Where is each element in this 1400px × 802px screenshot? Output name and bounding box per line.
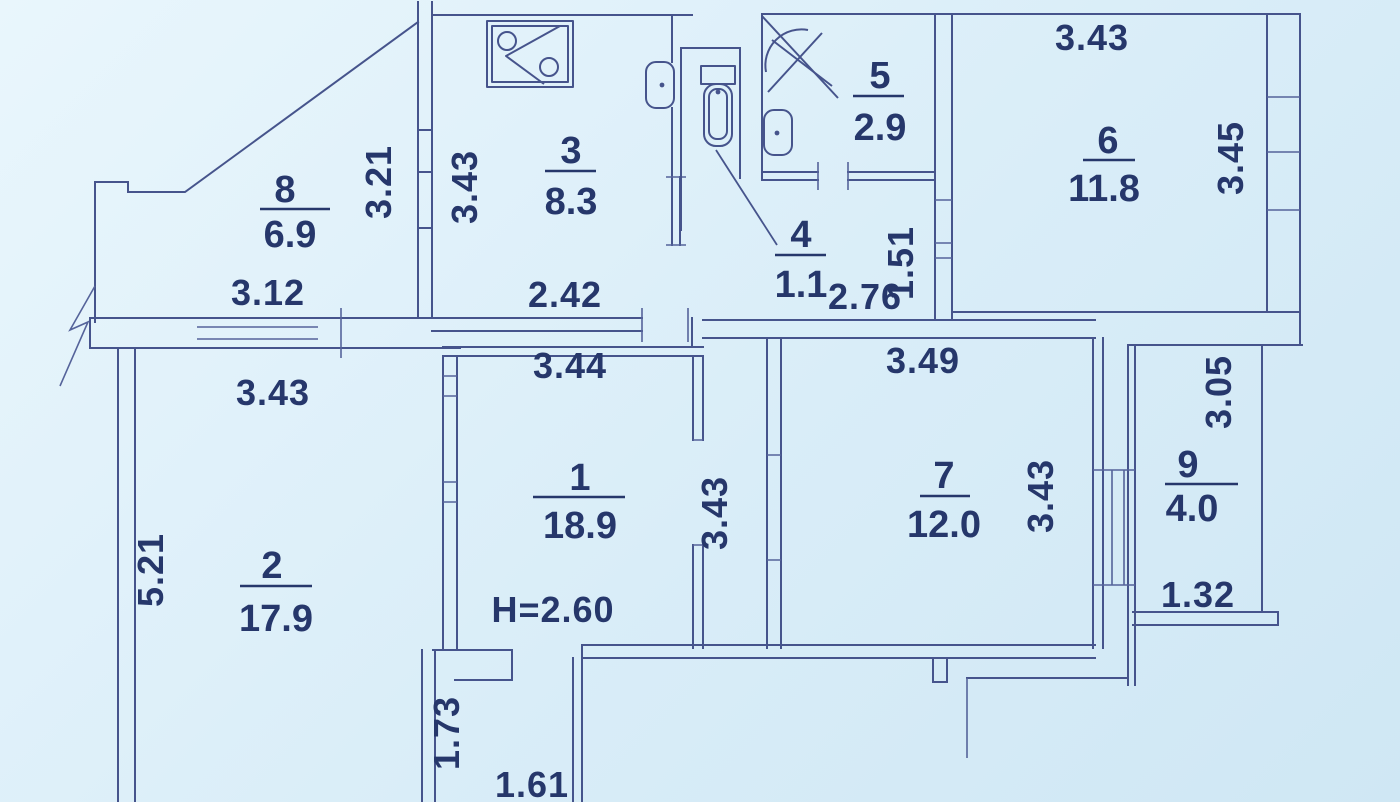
room-8-label: 8 6.9	[260, 169, 330, 256]
floor-plan-svg: 1 18.9 2 17.9 3 8.3 4 1.1 5 2.9 6 11.8	[0, 0, 1400, 802]
room-number: 7	[933, 455, 954, 497]
room-number: 2	[261, 545, 282, 587]
room-area: 4.0	[1166, 488, 1219, 530]
room-area: 1.1	[775, 264, 828, 306]
dim-room8-height: 3.21	[358, 145, 399, 219]
room-2-label: 2 17.9	[239, 545, 313, 640]
toilet-icon	[701, 66, 735, 146]
room-area: 12.0	[907, 504, 981, 546]
dimension-labels: 3.12 3.21 3.43 5.21 3.43 2.42 3.44 3.43 …	[130, 17, 1251, 802]
room-number: 9	[1177, 444, 1198, 486]
dim-hall-height: 1.73	[426, 696, 467, 770]
dim-room2-top: 3.43	[236, 372, 310, 413]
fixtures	[487, 16, 838, 245]
room-number: 3	[560, 130, 581, 172]
room-number: 1	[569, 457, 590, 499]
room-number: 5	[869, 55, 890, 97]
floor-plan: 1 18.9 2 17.9 3 8.3 4 1.1 5 2.9 6 11.8	[0, 0, 1400, 802]
dim-room6-right: 3.45	[1210, 121, 1251, 195]
kitchen-sink-icon	[487, 21, 573, 87]
room-area: 2.9	[854, 107, 907, 149]
dim-hall-width: 1.61	[495, 764, 569, 802]
room-9-label: 9 4.0	[1165, 444, 1238, 530]
dim-room9-bottom: 1.32	[1161, 574, 1235, 615]
wash-basin-icon	[764, 110, 792, 155]
room-1-label: 1 18.9	[533, 457, 625, 547]
dim-room2-left: 5.21	[130, 533, 171, 607]
door-swing-icon	[716, 150, 777, 245]
room-6-label: 6 11.8	[1068, 120, 1140, 210]
room-number: 8	[274, 169, 295, 211]
room-7-label: 7 12.0	[907, 455, 981, 546]
room-area: 11.8	[1068, 168, 1140, 210]
dim-room6-top: 3.43	[1055, 17, 1129, 58]
dim-room1-top: 3.44	[533, 345, 607, 386]
dim-kitchen-bottom: 2.42	[528, 274, 602, 315]
ceiling-height-label: H=2.60	[491, 589, 614, 630]
room-4-label: 4 1.1	[775, 214, 828, 306]
dim-room9-right: 3.05	[1198, 355, 1239, 429]
dim-room7-top: 3.49	[886, 340, 960, 381]
room-area: 6.9	[264, 214, 317, 256]
dim-lobby-height: 1.51	[880, 226, 921, 300]
dim-room8-width: 3.12	[231, 272, 305, 313]
room-5-label: 5 2.9	[853, 55, 906, 149]
room-number: 6	[1097, 120, 1118, 162]
shower-icon	[762, 16, 838, 98]
dim-room7-right: 3.43	[1020, 459, 1061, 533]
dim-corridor-right: 3.43	[694, 476, 735, 550]
room-area: 8.3	[545, 181, 598, 223]
room-number: 4	[790, 214, 811, 256]
dim-kitchen-left: 3.43	[444, 150, 485, 224]
room-area: 17.9	[239, 598, 313, 640]
room-area: 18.9	[543, 505, 617, 547]
room-3-label: 3 8.3	[545, 130, 598, 223]
wash-basin-icon	[646, 62, 674, 108]
